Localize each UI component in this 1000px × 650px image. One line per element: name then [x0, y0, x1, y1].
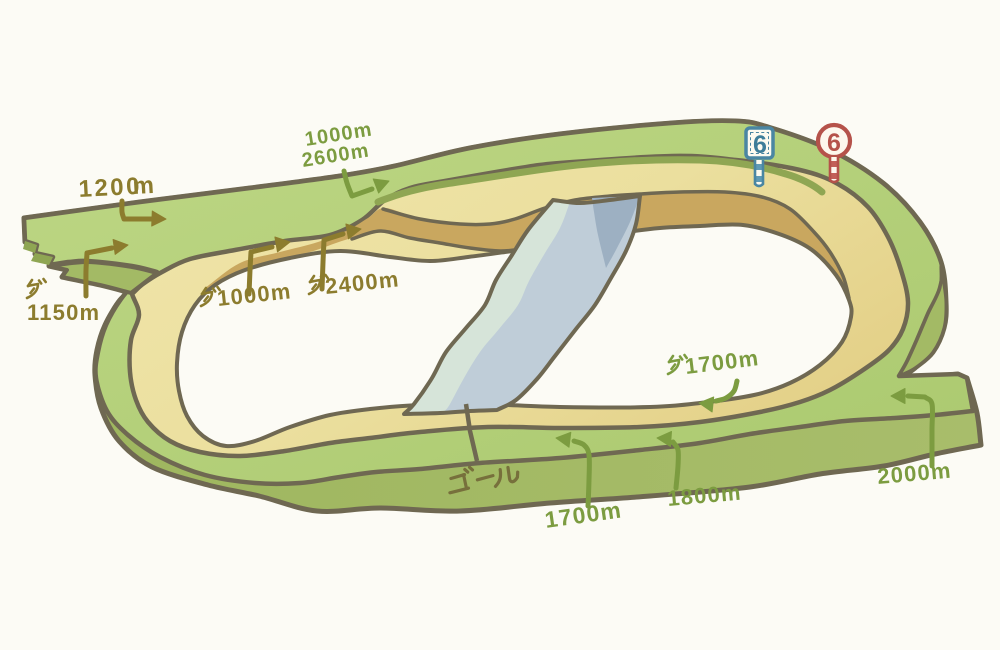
svg-text:6: 6 — [827, 129, 841, 157]
svg-text:m: m — [132, 172, 156, 200]
svg-text:6: 6 — [753, 131, 767, 159]
svg-text:1150m: 1150m — [27, 300, 100, 325]
